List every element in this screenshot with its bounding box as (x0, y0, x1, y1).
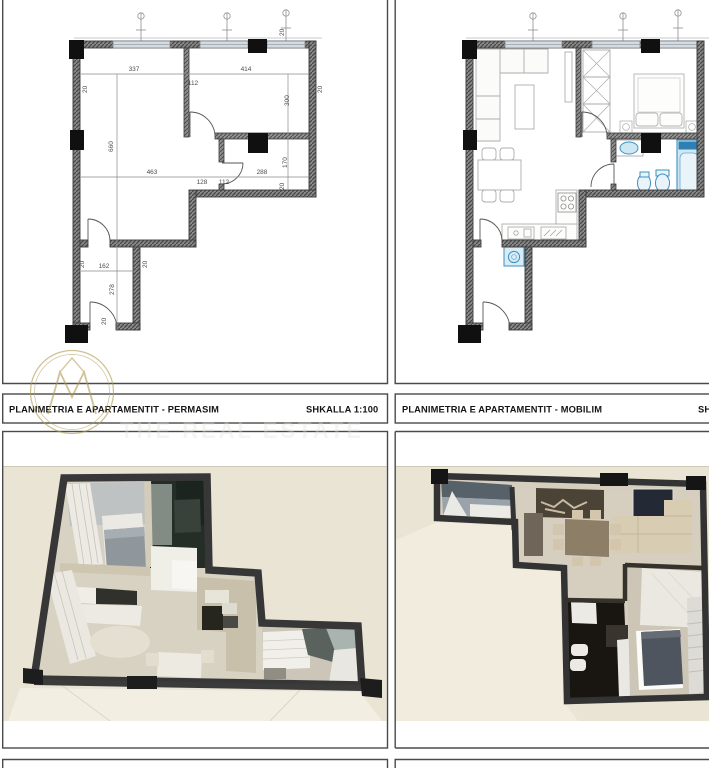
svg-text:20: 20 (317, 85, 324, 93)
svg-text:128: 128 (197, 179, 208, 186)
svg-text:300: 300 (284, 95, 291, 106)
svg-text:112: 112 (219, 179, 230, 186)
svg-text:PLANIMETRIA E APARTAMENTIT - M: PLANIMETRIA E APARTAMENTIT - MOBILIM (402, 405, 602, 415)
svg-text:278: 278 (109, 284, 116, 295)
svg-text:SHKALLA 1:100: SHKALLA 1:100 (306, 405, 378, 415)
svg-text:SHKALLA 1:100: SHKALLA 1:100 (698, 405, 709, 415)
svg-text:660: 660 (108, 141, 115, 152)
svg-text:20: 20 (279, 28, 286, 36)
svg-text:170: 170 (282, 157, 289, 168)
svg-text:288: 288 (257, 169, 268, 176)
svg-text:414: 414 (241, 66, 252, 73)
svg-text:463: 463 (147, 169, 158, 176)
svg-text:20: 20 (279, 182, 286, 190)
svg-text:20: 20 (82, 85, 89, 93)
svg-text:112: 112 (188, 80, 199, 87)
svg-text:337: 337 (129, 66, 140, 73)
svg-text:20: 20 (101, 317, 108, 325)
svg-text:162: 162 (99, 263, 110, 270)
svg-text:20: 20 (142, 260, 149, 268)
svg-text:20: 20 (79, 260, 86, 268)
svg-text:THE REAL ESTATE: THE REAL ESTATE (120, 418, 364, 443)
